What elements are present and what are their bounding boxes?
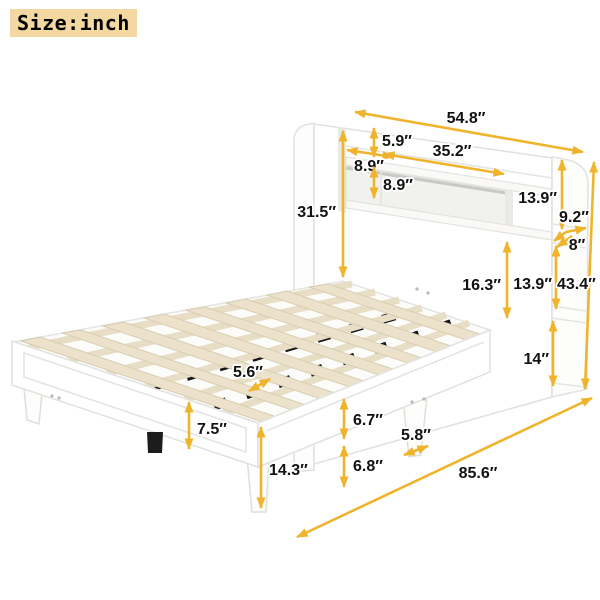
dim-5-9-label: 5.9″ [382, 133, 412, 150]
dim-7-5-label: 7.5″ [197, 421, 227, 438]
dim-5-8-label: 5.8″ [401, 427, 431, 444]
dim-14-label: 14″ [524, 351, 550, 368]
shelf-right-return [505, 190, 513, 227]
dim-9-2-label: 9.2″ [559, 209, 589, 226]
dim-5-6-label: 5.6″ [233, 364, 263, 381]
dim-8-9-shelf-label: 8.9″ [383, 177, 413, 194]
dim-43-4-label: 43.4″ [557, 276, 596, 293]
dim-35-2-label: 35.2″ [433, 143, 472, 160]
dim-13-9-lower-label: 13.9″ [513, 276, 552, 293]
dim-14-3-label: 14.3″ [269, 462, 308, 479]
dim-6-8-label: 6.8″ [353, 458, 383, 475]
dim-5-8: 5.8″ [401, 427, 431, 455]
dim-13-9-upper-label: 13.9″ [518, 190, 557, 207]
center-front-leg [147, 432, 163, 453]
bed-illustration [12, 123, 588, 512]
diagram-stage: Size:inch [0, 0, 600, 600]
dim-85-6-label: 85.6″ [459, 465, 498, 482]
dim-31-5-label: 31.5″ [297, 204, 336, 221]
dim-16-3-label: 16.3″ [462, 277, 501, 294]
bed-dimension-diagram: 54.8″5.9″35.2″8.9″8.9″31.5″13.9″9.2″8″13… [0, 0, 600, 600]
dim-6-7-label: 6.7″ [353, 412, 383, 429]
dim-8-shelf-label: 8″ [569, 237, 586, 254]
dim-8-9-side-label: 8.9″ [354, 158, 384, 175]
dim-54-8-label: 54.8″ [447, 110, 486, 127]
